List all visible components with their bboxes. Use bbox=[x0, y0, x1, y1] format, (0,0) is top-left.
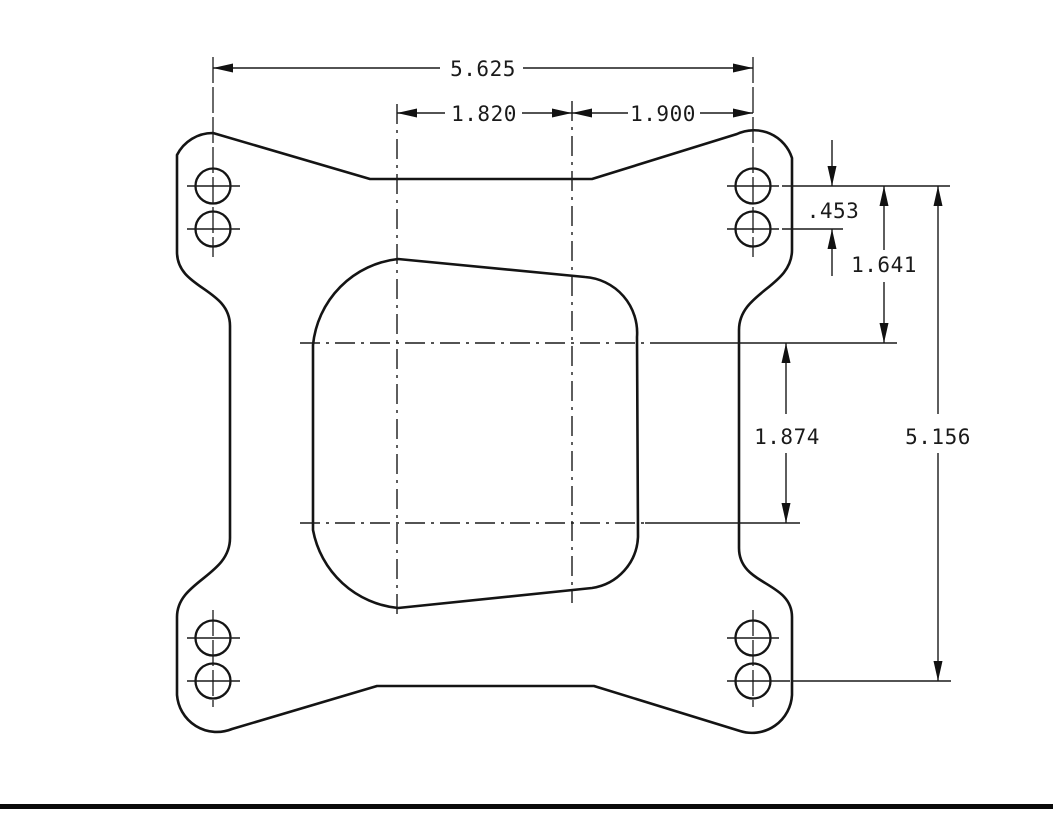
dim-label-overall-height: 5.156 bbox=[905, 425, 971, 449]
arrowhead-right bbox=[733, 64, 753, 73]
dim-label-overall-width: 5.625 bbox=[450, 57, 516, 81]
arrowhead-up bbox=[934, 186, 943, 206]
arrowhead-left bbox=[397, 109, 417, 118]
dim-label-bolt-hole-pair-gap: .453 bbox=[807, 199, 860, 223]
bolt-holes bbox=[196, 169, 771, 699]
plenum-opening bbox=[313, 259, 638, 608]
sheet-bottom-border bbox=[0, 804, 1053, 809]
arrowhead-down bbox=[828, 166, 837, 186]
arrowhead-down bbox=[880, 323, 889, 343]
dim-label-bore-to-bolt-right: 1.900 bbox=[630, 102, 696, 126]
arrowhead-down bbox=[782, 503, 791, 523]
arrowhead-up bbox=[880, 186, 889, 206]
technical-drawing: 5.625 1.820 1.900 .453 1.641 1 bbox=[0, 0, 1053, 813]
arrowhead-left bbox=[572, 109, 592, 118]
dimension-bolt-to-bore-center: 1.641 bbox=[851, 186, 917, 343]
hole-centerlines bbox=[187, 57, 951, 707]
dimension-bore-span-left: 1.820 bbox=[397, 102, 572, 126]
arrowhead-right bbox=[733, 109, 753, 118]
dimension-bore-center-spacing: 1.874 bbox=[754, 343, 820, 523]
dimension-bore-to-bolt-right: 1.900 bbox=[572, 102, 753, 126]
dimension-overall-width: 5.625 bbox=[213, 57, 753, 81]
dim-label-bolt-to-bore-center: 1.641 bbox=[851, 253, 917, 277]
arrowhead-right bbox=[552, 109, 572, 118]
dim-label-bore-span-left: 1.820 bbox=[451, 102, 517, 126]
drawing-sheet: 5.625 1.820 1.900 .453 1.641 1 bbox=[0, 0, 1053, 813]
dim-label-bore-center-spacing: 1.874 bbox=[754, 425, 820, 449]
arrowhead-up bbox=[828, 229, 837, 249]
arrowhead-up bbox=[782, 343, 791, 363]
arrowhead-down bbox=[934, 661, 943, 681]
arrowhead-left bbox=[213, 64, 233, 73]
gasket-outline bbox=[177, 130, 792, 733]
